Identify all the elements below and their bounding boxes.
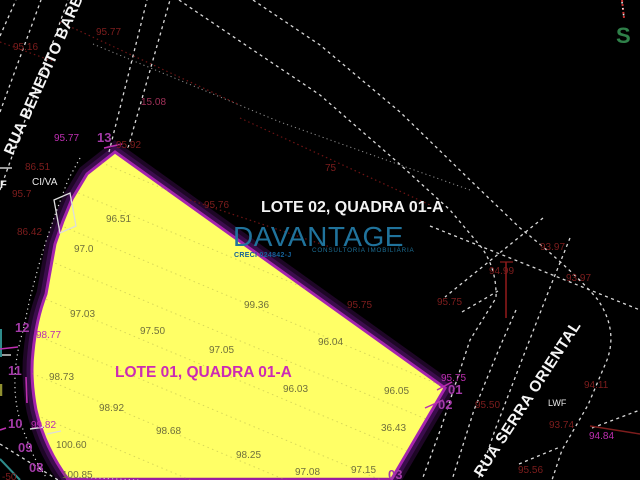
svg-text:94.84: 94.84 — [589, 431, 614, 442]
svg-text:12: 12 — [15, 320, 29, 335]
svg-text:S: S — [616, 23, 631, 48]
svg-text:98.68: 98.68 — [156, 426, 181, 437]
svg-text:96.04: 96.04 — [318, 337, 343, 348]
svg-text:-50: -50 — [2, 472, 17, 480]
svg-text:93.74: 93.74 — [549, 420, 574, 431]
svg-text:93.97: 93.97 — [540, 242, 565, 253]
svg-text:97.50: 97.50 — [140, 326, 165, 337]
svg-text:97.08: 97.08 — [295, 467, 320, 478]
svg-text:CRECI 024842-J: CRECI 024842-J — [234, 252, 292, 259]
svg-text:LWF: LWF — [548, 398, 567, 408]
svg-text:98.73: 98.73 — [49, 372, 74, 383]
svg-text:08: 08 — [29, 460, 43, 475]
svg-text:97.15: 97.15 — [351, 465, 376, 476]
svg-text:97.0: 97.0 — [74, 244, 94, 255]
svg-text:LOTE 02, QUADRA 01-A: LOTE 02, QUADRA 01-A — [261, 199, 444, 216]
svg-text:10: 10 — [8, 416, 22, 431]
svg-text:97.05: 97.05 — [209, 345, 234, 356]
svg-text:95.16: 95.16 — [13, 42, 38, 53]
svg-text:13: 13 — [97, 130, 111, 145]
svg-text:100.60: 100.60 — [56, 440, 87, 451]
svg-text:F: F — [0, 179, 7, 191]
svg-text:99.36: 99.36 — [244, 300, 269, 311]
svg-text:95.75: 95.75 — [347, 300, 372, 311]
svg-text:01: 01 — [448, 382, 462, 397]
svg-text:CONSULTORIA IMOBILIÁRIA: CONSULTORIA IMOBILIÁRIA — [312, 245, 415, 254]
svg-text:93.97: 93.97 — [566, 273, 591, 284]
svg-text:95.77: 95.77 — [96, 27, 121, 38]
svg-text:86.51: 86.51 — [25, 162, 50, 173]
svg-text:98.92: 98.92 — [99, 403, 124, 414]
svg-text:11: 11 — [8, 363, 22, 378]
svg-text:95.77: 95.77 — [54, 133, 79, 144]
svg-text:98.25: 98.25 — [236, 450, 261, 461]
svg-text:94.11: 94.11 — [584, 380, 609, 391]
svg-text:96.03: 96.03 — [283, 384, 308, 395]
svg-text:09: 09 — [18, 440, 32, 455]
svg-text:96.05: 96.05 — [384, 386, 409, 397]
svg-text:96.51: 96.51 — [106, 214, 131, 225]
svg-text:95.7: 95.7 — [12, 189, 32, 200]
svg-text:94.99: 94.99 — [489, 266, 514, 277]
svg-text:97.03: 97.03 — [70, 309, 95, 320]
svg-text:15.08: 15.08 — [141, 97, 166, 108]
svg-text:02: 02 — [438, 397, 452, 412]
svg-text:95.50: 95.50 — [475, 400, 500, 411]
svg-text:03: 03 — [388, 467, 402, 480]
svg-text:95.92: 95.92 — [116, 140, 141, 151]
svg-text:95.76: 95.76 — [204, 200, 229, 211]
svg-text:100.85: 100.85 — [62, 470, 93, 480]
svg-text:95.56: 95.56 — [518, 465, 543, 476]
svg-text:98.77: 98.77 — [36, 330, 61, 341]
svg-text:86.42: 86.42 — [17, 227, 42, 238]
svg-text:95.75: 95.75 — [437, 297, 462, 308]
svg-text:LOTE 01, QUADRA 01-A: LOTE 01, QUADRA 01-A — [115, 364, 292, 381]
svg-text:75: 75 — [325, 163, 337, 174]
svg-text:CI/VA: CI/VA — [32, 177, 58, 188]
svg-text:36.43: 36.43 — [381, 423, 406, 434]
svg-text:99.82: 99.82 — [31, 420, 56, 431]
